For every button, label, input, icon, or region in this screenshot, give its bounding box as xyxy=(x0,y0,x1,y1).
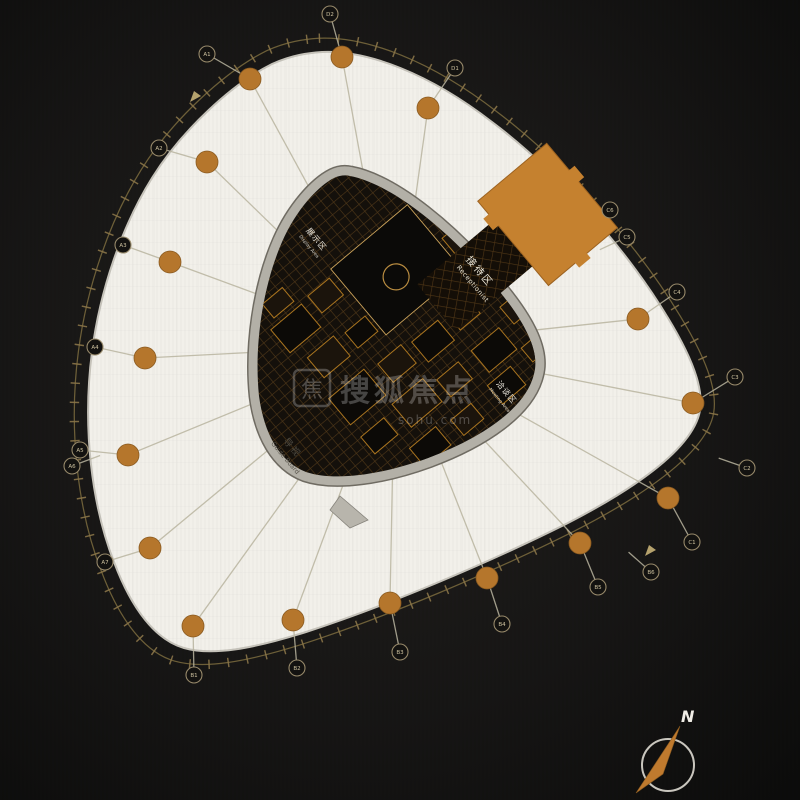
column-dot xyxy=(569,532,591,554)
grid-bubble-label: C5 xyxy=(623,235,631,241)
column-dot xyxy=(239,68,261,90)
watermark-title: 搜狐焦点 xyxy=(340,374,476,409)
grid-bubble-label: C1 xyxy=(688,540,695,546)
grid-bubble-label: C2 xyxy=(743,466,750,472)
column-dot xyxy=(159,251,181,273)
column-dot xyxy=(139,537,161,559)
column-dot xyxy=(476,567,498,589)
column-dot xyxy=(134,347,156,369)
column-dot xyxy=(627,308,649,330)
column-dot xyxy=(282,609,304,631)
grid-bubble-label: B1 xyxy=(190,673,197,679)
column-dot xyxy=(196,151,218,173)
column-dot xyxy=(417,97,439,119)
grid-bubble-label: D1 xyxy=(451,66,459,72)
grid-bubble-label: B3 xyxy=(396,650,404,656)
grid-bubble-label: B4 xyxy=(498,622,506,628)
grid-bubble-label: A2 xyxy=(155,146,162,152)
grid-bubble-label: B6 xyxy=(647,570,655,576)
grid-bubble-label: A5 xyxy=(76,448,84,454)
north-label: N xyxy=(681,707,695,726)
grid-bubble-label: B2 xyxy=(293,666,300,672)
grid-bubble-label: A4 xyxy=(91,345,99,351)
column-dot xyxy=(331,46,353,68)
watermark-subtitle: sohu.com xyxy=(398,413,472,427)
grid-bubble-label: C6 xyxy=(606,208,614,214)
grid-bubble-label: A3 xyxy=(119,243,127,249)
grid-bubble-label: C3 xyxy=(731,375,739,381)
watermark-logo-char: 焦 xyxy=(301,378,323,403)
grid-bubble-label: B5 xyxy=(594,585,602,591)
column-dot xyxy=(657,487,679,509)
grid-bubble-label: A1 xyxy=(203,52,210,58)
column-dot xyxy=(117,444,139,466)
column-dot xyxy=(182,615,204,637)
column-dot xyxy=(379,592,401,614)
grid-bubble-label: D2 xyxy=(326,12,334,18)
floor-plan-canvas: 展示区 Display Area 洽谈区 Meeting Area 导视 Gui… xyxy=(0,0,800,800)
column-dot xyxy=(682,392,704,414)
grid-bubble-label: C4 xyxy=(673,290,681,296)
grid-bubble-label: A7 xyxy=(101,560,109,566)
grid-bubble-label: A6 xyxy=(68,464,76,470)
